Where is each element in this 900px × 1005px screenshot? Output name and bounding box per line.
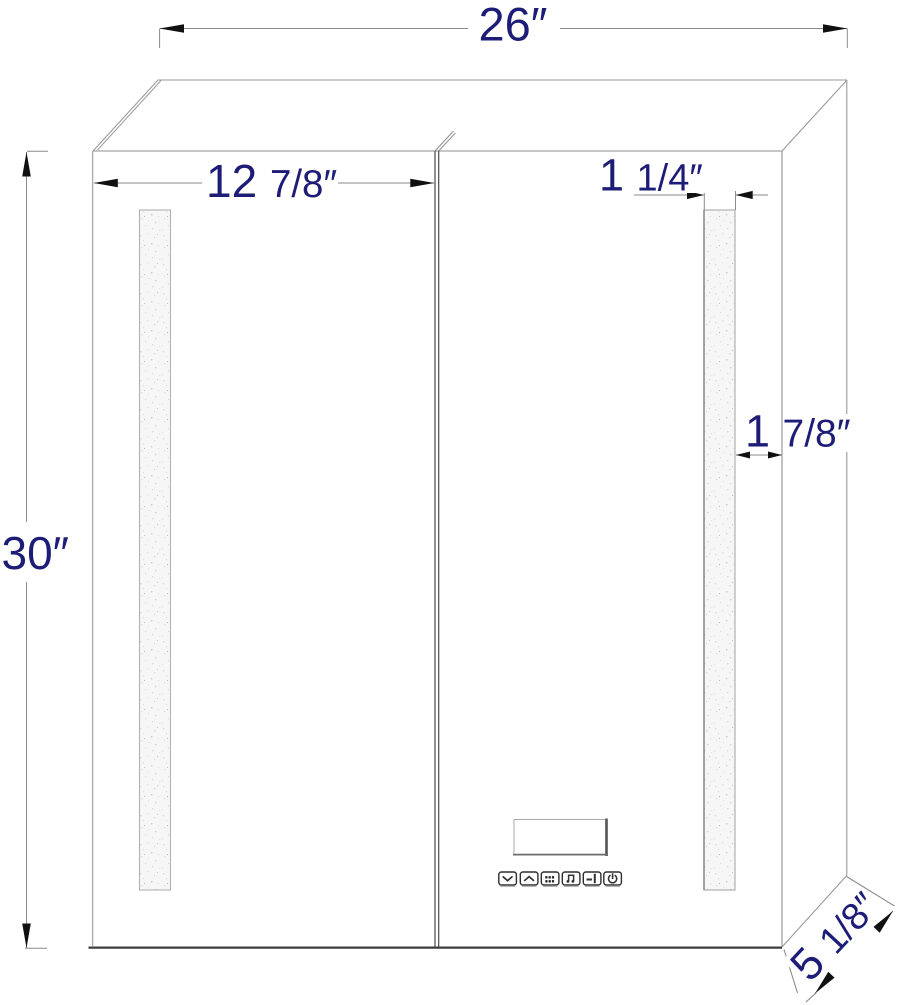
svg-text:1 1/4″: 1 1/4″ [599,150,703,201]
svg-text:1 7/8″: 1 7/8″ [745,406,851,457]
svg-text:12 7/8″: 12 7/8″ [206,155,337,207]
svg-text:30″: 30″ [2,527,69,579]
svg-text:26″: 26″ [479,0,548,51]
